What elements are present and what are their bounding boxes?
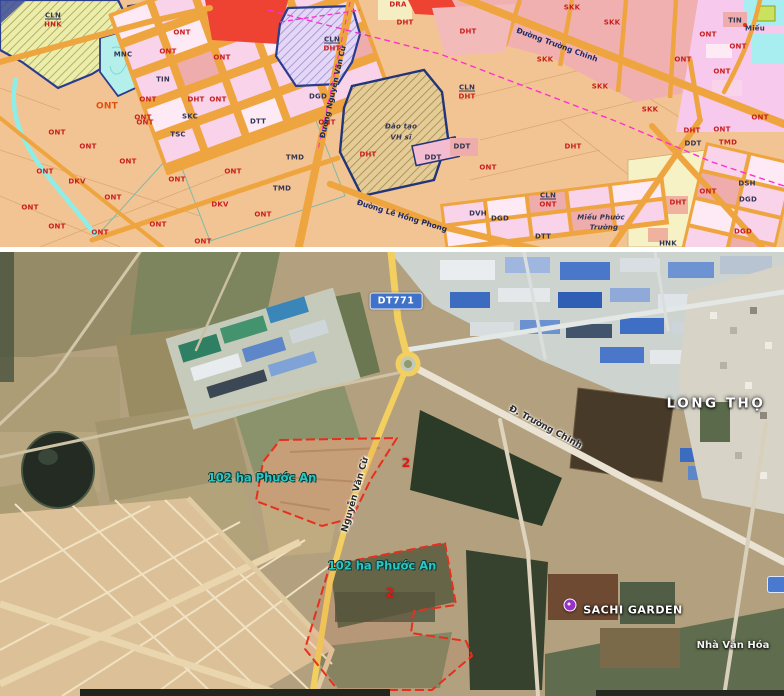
planning-map[interactable]: CLNHNKMNCTINDHTSKCTSCDTTDGDTMDTMDDKVDKVO… xyxy=(0,0,784,247)
route-badge-dt771: DT771 xyxy=(370,293,423,310)
satellite-map[interactable]: LONG THỌ102 ha Phước An102 ha Phước An22… xyxy=(0,252,784,696)
partial-route-badge xyxy=(767,576,784,593)
satellite-canvas xyxy=(0,252,784,696)
sachi-garden-pin[interactable] xyxy=(564,599,577,612)
planning-map-canvas xyxy=(0,0,784,247)
